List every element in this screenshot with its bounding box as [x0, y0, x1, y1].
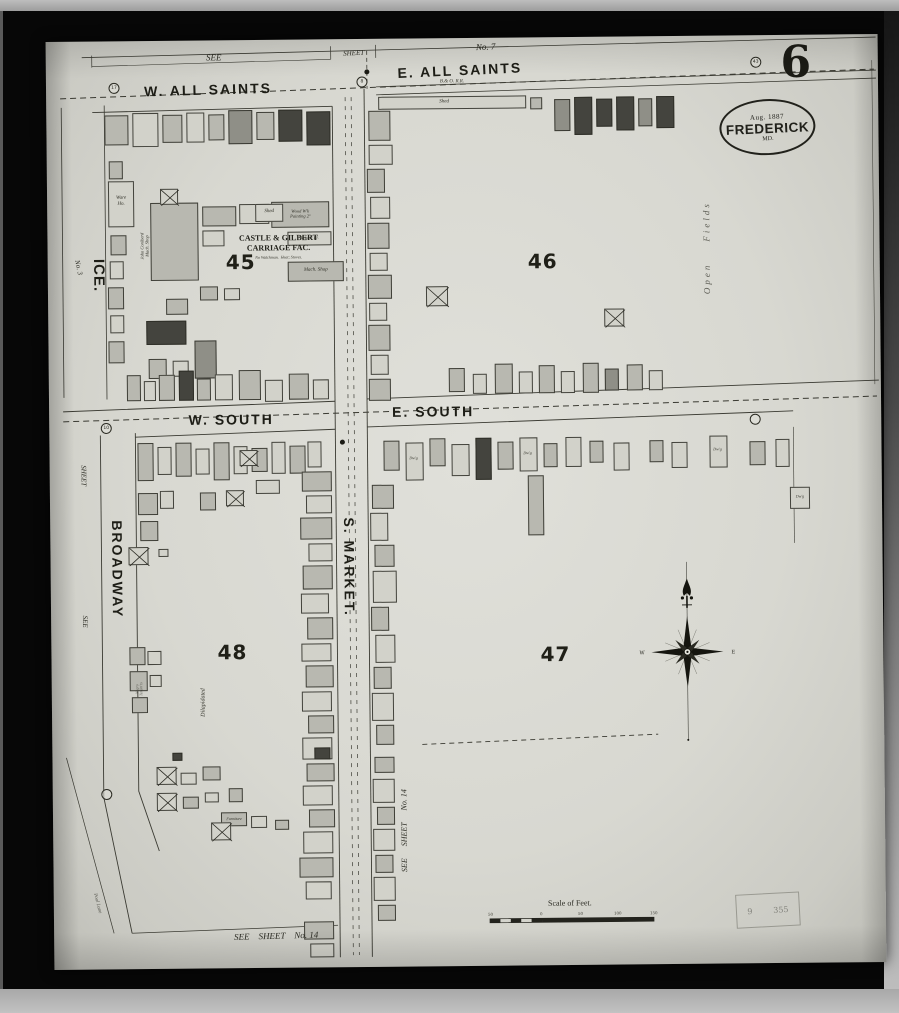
- block-number-45: 45: [226, 250, 256, 274]
- top-edge-strip: [0, 0, 899, 11]
- block-numbers-layer: 45464748: [46, 34, 887, 970]
- block-number-47: 47: [540, 642, 570, 666]
- photo-background: W E 50050100150 1784310 SEESHEETNo. 7W. …: [0, 0, 899, 1013]
- stamp-state: MD.: [762, 135, 773, 141]
- library-stamp-number: 355: [773, 905, 789, 915]
- block-number-48: 48: [217, 640, 247, 664]
- bottom-edge-strip: [0, 989, 899, 1013]
- map-paper: W E 50050100150 1784310 SEESHEETNo. 7W. …: [46, 34, 887, 970]
- page-number: 6: [774, 37, 818, 88]
- library-stamp-left: 9: [747, 906, 753, 915]
- left-edge-strip: [0, 11, 3, 989]
- right-edge-strip: [884, 11, 899, 989]
- block-number-46: 46: [528, 249, 558, 273]
- library-stamp: 9 355: [735, 891, 801, 928]
